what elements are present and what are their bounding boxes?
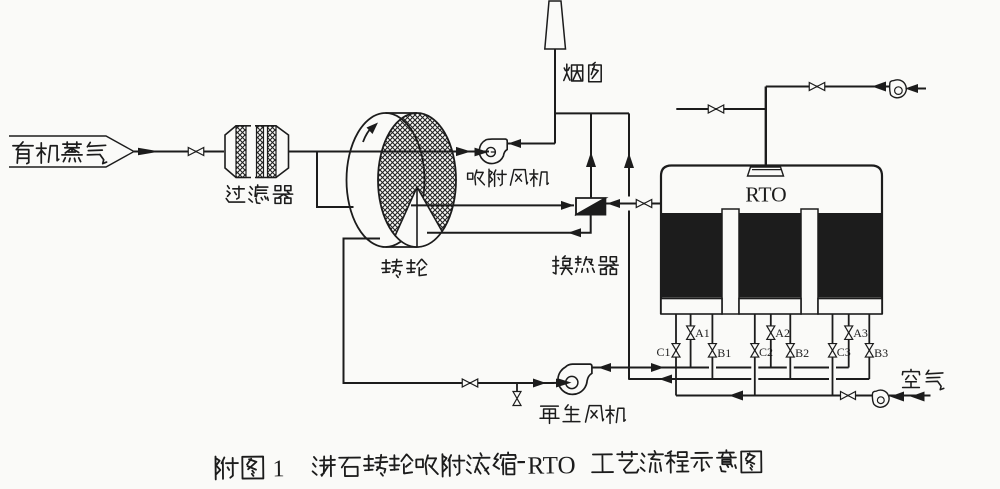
svg-text:B3: B3 [874,346,888,360]
svg-text:1: 1 [272,456,284,482]
svg-text:C2: C2 [759,345,773,359]
svg-text:B1: B1 [717,346,731,360]
svg-text:B2: B2 [795,346,809,360]
svg-text:C3: C3 [837,345,851,359]
svg-text:RTO: RTO [745,183,786,207]
svg-text:RTO: RTO [527,452,575,480]
svg-text:A1: A1 [695,326,710,340]
svg-text:A2: A2 [775,326,790,340]
svg-text:C1: C1 [657,345,671,359]
svg-text:A3: A3 [853,326,868,340]
